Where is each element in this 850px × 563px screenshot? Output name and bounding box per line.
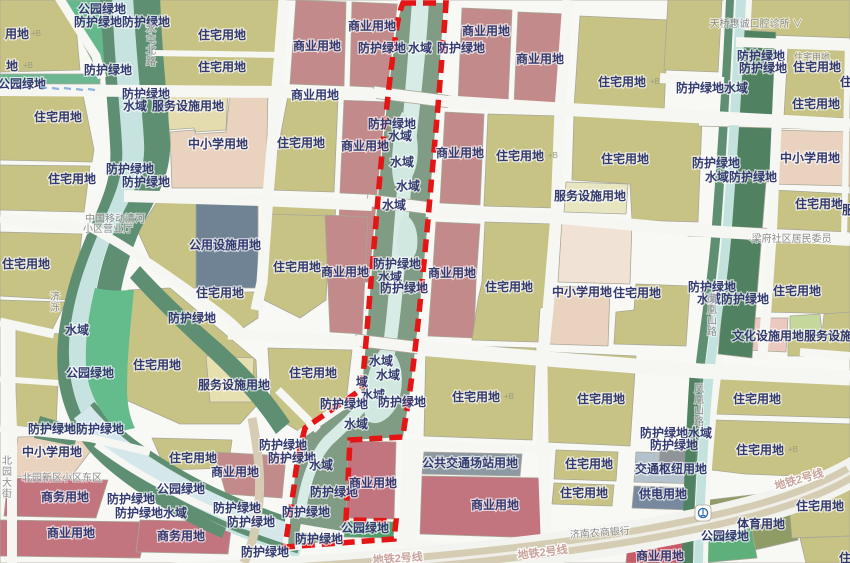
svg-text:·梁府社区居民委员: ·梁府社区居民委员 [748, 232, 831, 245]
svg-text:住宅用地: 住宅用地 [485, 279, 533, 294]
svg-text:+B: +B [788, 445, 798, 454]
svg-text:水域: 水域 [388, 128, 412, 143]
svg-text:商务用地: 商务用地 [41, 489, 89, 504]
svg-text:防护绿地: 防护绿地 [378, 394, 426, 409]
svg-text:防护绿地: 防护绿地 [213, 500, 261, 515]
svg-text:住宅用地: 住宅用地 [565, 456, 613, 471]
svg-text:文化设施用地: 文化设施用地 [732, 328, 804, 343]
svg-text:防护绿地: 防护绿地 [241, 544, 289, 559]
svg-text:公园绿地: 公园绿地 [78, 1, 126, 16]
svg-text:防护绿地: 防护绿地 [168, 310, 216, 325]
svg-text:防护绿地: 防护绿地 [437, 40, 485, 55]
svg-text:服务设施用地: 服务设施用地 [554, 188, 626, 203]
svg-text:水域防护绿地: 水域防护绿地 [705, 169, 777, 184]
svg-text:住宅用地: 住宅用地 [289, 365, 337, 380]
svg-text:住: 住 [840, 74, 850, 89]
svg-text:供电用地: 供电用地 [638, 486, 687, 501]
svg-text:防护绿地: 防护绿地 [295, 531, 343, 546]
svg-text:商业用地: 商业用地 [349, 475, 397, 490]
svg-text:商业用地: 商业用地 [47, 525, 95, 540]
svg-text:地: 地 [6, 58, 18, 73]
svg-text:北园新区小区东区: 北园新区小区东区 [22, 471, 102, 484]
svg-text:住宅用地: 住宅用地 [273, 259, 321, 274]
svg-text:商业用地: 商业用地 [321, 264, 369, 279]
svg-text:防护绿地: 防护绿地 [106, 161, 154, 176]
svg-text:水域: 水域 [408, 40, 432, 55]
svg-text:公园绿地: 公园绿地 [701, 528, 749, 543]
svg-text:凤: 凤 [694, 383, 704, 395]
svg-text:商业用地: 商业用地 [428, 265, 476, 280]
svg-text:服务设施用地: 服务设施用地 [198, 377, 270, 392]
svg-text:水域: 水域 [369, 353, 393, 368]
svg-text:商业用地: 商业用地 [636, 548, 684, 563]
svg-text:公园绿地: 公园绿地 [341, 520, 389, 535]
svg-text:泺: 泺 [50, 302, 60, 314]
svg-text:公园绿地: 公园绿地 [0, 76, 46, 91]
svg-text:中小学用地: 中小学用地 [780, 150, 840, 165]
svg-text:凤: 凤 [707, 293, 717, 305]
svg-text:商业用地: 商业用地 [471, 497, 519, 512]
svg-text:园: 园 [2, 466, 12, 478]
svg-text:水域: 水域 [65, 322, 89, 337]
svg-text:防护绿地: 防护绿地 [692, 155, 740, 170]
svg-text:小区营业厅: 小区营业厅 [83, 222, 133, 235]
svg-text:住宅用地: 住宅用地 [736, 442, 784, 457]
svg-text:商业用地: 商业用地 [436, 145, 484, 160]
svg-text:住宅用地: 住宅用地 [198, 59, 246, 74]
svg-text:+B: +B [504, 392, 514, 401]
svg-text:水域: 水域 [309, 457, 333, 472]
svg-text:商业用地: 商业用地 [462, 23, 510, 38]
svg-text:住宅用地: 住宅用地 [34, 109, 82, 124]
svg-text:山: 山 [707, 315, 717, 327]
svg-text:商业用地: 商业用地 [293, 38, 341, 53]
svg-text:中小学用地: 中小学用地 [552, 284, 612, 299]
svg-text:住宅用地: 住宅用地 [793, 59, 841, 74]
svg-text:住宅用地: 住宅用地 [796, 498, 844, 513]
svg-text:住宅用地: 住宅用地 [198, 27, 246, 42]
svg-text:街: 街 [2, 487, 12, 500]
svg-text:公园绿地: 公园绿地 [66, 365, 114, 380]
svg-text:防护绿地水域: 防护绿地水域 [676, 80, 748, 95]
svg-text:防护绿地防护绿地: 防护绿地防护绿地 [28, 421, 124, 436]
svg-text:公共交通场站用地: 公共交通场站用地 [422, 455, 518, 470]
svg-text:水域: 水域 [376, 367, 400, 382]
svg-text:商务用地: 商务用地 [157, 528, 205, 543]
svg-text:住宅用地: 住宅用地 [792, 96, 840, 111]
svg-text:水: 水 [146, 23, 156, 35]
svg-text:路: 路 [707, 325, 717, 338]
svg-text:住宅用地: 住宅用地 [277, 135, 325, 150]
svg-text:商业用地: 商业用地 [211, 464, 259, 479]
svg-text:住宅用地: 住宅用地 [733, 391, 781, 406]
svg-text:商业用地: 商业用地 [341, 138, 389, 153]
svg-text:住宅用地: 住宅用地 [133, 357, 181, 372]
svg-text:防护绿地: 防护绿地 [650, 437, 698, 452]
svg-text:防护绿地: 防护绿地 [122, 174, 170, 189]
svg-text:住宅用地: 住宅用地 [773, 283, 821, 298]
svg-text:住宅用地: 住宅用地 [613, 285, 661, 300]
svg-text:+B: +B [23, 61, 33, 70]
svg-text:防护绿地水域: 防护绿地水域 [115, 505, 187, 520]
svg-text:域: 域 [356, 374, 368, 389]
svg-text:用地: 用地 [4, 26, 29, 41]
svg-text:住宅用地: 住宅用地 [560, 485, 608, 500]
svg-text:水域: 水域 [390, 154, 414, 169]
svg-text:凰: 凰 [694, 394, 704, 406]
svg-text:天桥惠诚口腔诊所 ∨: 天桥惠诚口腔诊所 ∨ [710, 17, 803, 30]
svg-text:水域: 水域 [382, 197, 406, 212]
svg-text:住宅用地: 住宅用地 [48, 171, 96, 186]
svg-text:防护绿地: 防护绿地 [227, 514, 275, 529]
svg-text:商业用地: 商业用地 [291, 87, 339, 102]
svg-text:服: 服 [842, 202, 850, 217]
svg-text:住宅用地: 住宅用地 [2, 256, 50, 271]
svg-text:交通枢纽用地: 交通枢纽用地 [635, 461, 707, 476]
svg-text:住宅用地: 住宅用地 [577, 391, 625, 406]
svg-text:防护绿地: 防护绿地 [320, 396, 368, 411]
svg-text:住宅用地: 住宅用地 [496, 148, 544, 163]
svg-text:山: 山 [694, 405, 704, 417]
svg-text:+B: +B [650, 77, 660, 86]
svg-text:+B: +B [548, 151, 558, 160]
svg-text:中小学用地: 中小学用地 [188, 136, 248, 151]
svg-text:大: 大 [2, 476, 12, 489]
svg-text:住宅用地: 住宅用地 [601, 151, 649, 166]
svg-text:防护绿地: 防护绿地 [107, 491, 155, 506]
svg-text:北: 北 [146, 45, 156, 57]
svg-text:水域: 水域 [396, 178, 420, 193]
svg-text:凰: 凰 [707, 304, 717, 316]
svg-text:防护绿地: 防护绿地 [373, 256, 421, 271]
svg-text:路: 路 [694, 415, 704, 428]
svg-text:防护绿地: 防护绿地 [84, 62, 132, 77]
svg-text:防护绿地: 防护绿地 [739, 60, 787, 75]
svg-text:住宅用地: 住宅用地 [196, 285, 244, 300]
svg-text:北: 北 [2, 455, 12, 467]
svg-text:+B: +B [31, 29, 41, 38]
svg-text:住宅用地: 住宅用地 [598, 74, 646, 89]
svg-text:防护绿地: 防护绿地 [282, 504, 330, 519]
svg-text:住宅用地: 住宅用地 [795, 196, 843, 211]
svg-text:水域: 水域 [123, 98, 147, 113]
svg-text:住宅用地: 住宅用地 [169, 450, 217, 465]
svg-text:防护绿地: 防护绿地 [380, 280, 428, 295]
svg-text:防护绿地: 防护绿地 [259, 437, 307, 452]
svg-text:公用设施用地: 公用设施用地 [189, 237, 261, 252]
svg-text:水域: 水域 [344, 416, 368, 431]
svg-text:住宅用地: 住宅用地 [452, 389, 500, 404]
svg-text:路: 路 [146, 55, 156, 68]
svg-text:商业用地: 商业用地 [516, 51, 564, 66]
svg-text:防护绿地: 防护绿地 [358, 40, 406, 55]
svg-text:服务设施用地: 服务设施用地 [152, 98, 224, 113]
svg-text:住: 住 [839, 550, 850, 563]
svg-text:屯: 屯 [146, 33, 156, 46]
svg-text:公园绿地: 公园绿地 [157, 481, 205, 496]
svg-text:济: 济 [50, 290, 60, 303]
svg-text:服务设施: 服务设施 [804, 328, 850, 343]
svg-text:中小学用地: 中小学用地 [22, 444, 82, 459]
svg-text:商业用地: 商业用地 [348, 18, 396, 33]
